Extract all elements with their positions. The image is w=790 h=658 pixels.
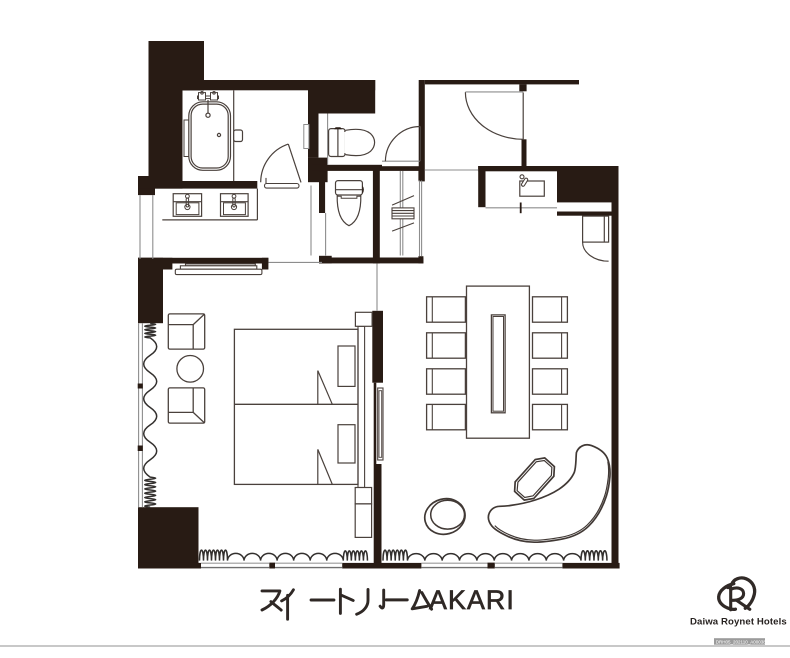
svg-text:DRH05_202110_A00038: DRH05_202110_A00038 (716, 639, 766, 644)
svg-text:AKARI: AKARI (429, 585, 515, 615)
svg-text:Daiwa Roynet Hotels: Daiwa Roynet Hotels (690, 617, 787, 628)
